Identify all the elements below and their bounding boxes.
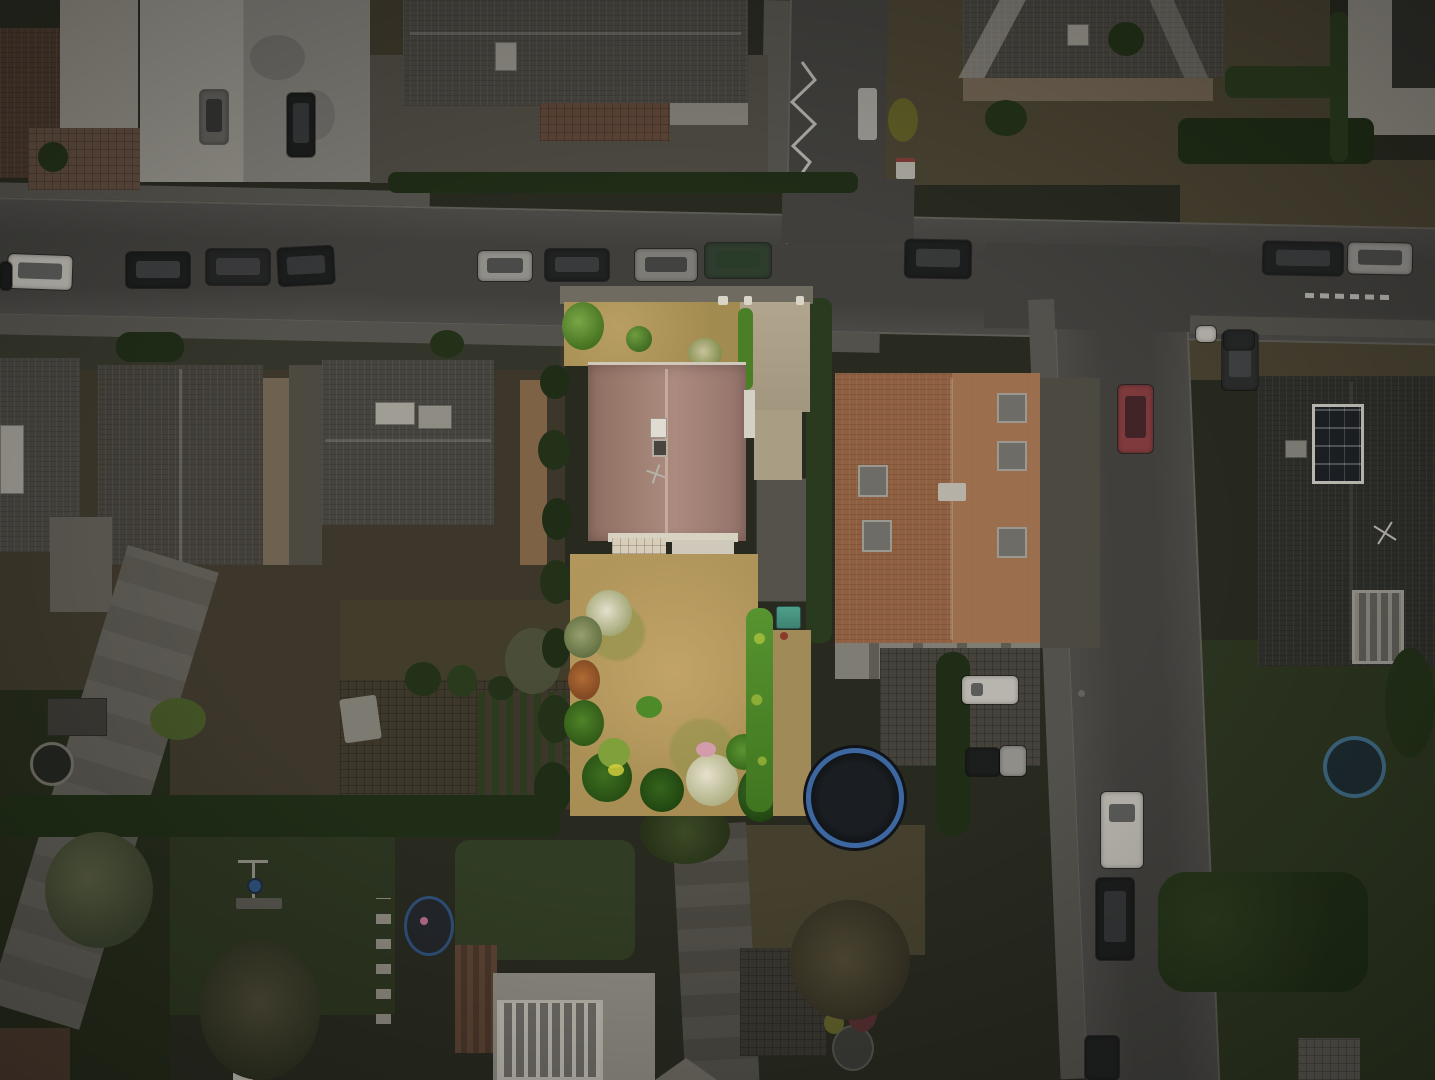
flat-roof-wing-upper (50, 517, 112, 612)
parked-car-silver (478, 251, 532, 281)
hedge-right-garden-row (1158, 872, 1368, 992)
brick-terrace (540, 103, 670, 141)
white-trailer (858, 88, 877, 140)
round-bush-front (626, 326, 652, 352)
teal-storage-boxes (776, 606, 801, 629)
skylight (418, 405, 452, 429)
hedge-topright-garden (1225, 66, 1345, 98)
aerial-neighborhood-photo (0, 0, 1435, 1080)
flower-pink (696, 742, 716, 757)
white-patio-strip (670, 103, 748, 125)
house-roof-mid-left-b (322, 360, 494, 525)
parked-car-black (0, 262, 12, 290)
parked-car-black (126, 252, 190, 288)
car-glass (136, 261, 180, 278)
car-glass (915, 249, 960, 268)
car-glass (18, 262, 62, 280)
parked-car-black (1096, 878, 1134, 960)
gravel-drive-orange-house (1040, 378, 1100, 648)
skylight (1285, 440, 1307, 458)
gate-post (744, 296, 752, 305)
parcel-driveway-lower (754, 410, 802, 480)
paving-bottom-right (1298, 1038, 1360, 1080)
gravel-path-between-houses (289, 365, 322, 565)
car-glass (216, 258, 260, 275)
flat-roof-white-building (140, 0, 370, 182)
bottom-middle-lawn (455, 840, 635, 960)
tree (405, 662, 441, 696)
skylight (1067, 24, 1089, 46)
hot-tub (404, 896, 454, 956)
bush-dark-round (640, 768, 684, 812)
parked-car-black (1263, 241, 1344, 275)
bush-dark-left (564, 700, 604, 746)
bush-row-left-sidewalk (116, 332, 184, 362)
roof-window (862, 520, 892, 552)
parcel-right-hedge (746, 608, 773, 812)
house-roof-corner-bottomleft (0, 1028, 70, 1080)
car-glass (487, 258, 524, 272)
roof-ridge (410, 32, 741, 35)
parked-car-darkgreen (705, 243, 771, 278)
bush (1108, 22, 1144, 56)
parked-car-silver-court (1000, 746, 1026, 776)
car-glass (555, 257, 599, 272)
roof-hatch-white (938, 483, 966, 501)
bush (430, 330, 464, 358)
red-garden-item (780, 632, 788, 640)
tree-right-garden (1385, 648, 1435, 758)
car-glass (1104, 891, 1127, 942)
pergola-brown (455, 945, 497, 1053)
roof-stain (250, 35, 305, 80)
gable-band (958, 0, 1026, 78)
roof-window (997, 393, 1027, 423)
parked-car-black (1085, 1036, 1119, 1080)
parked-car-white (7, 254, 72, 290)
roof-ridge (325, 439, 490, 442)
bush-yellow-accent (608, 764, 624, 776)
roof-skylight-dark (652, 439, 668, 457)
car-glass (645, 257, 687, 272)
parked-car-gray (635, 249, 697, 281)
stepping-stones (376, 898, 391, 1024)
gable-band (1150, 0, 1208, 78)
roof-window (858, 465, 888, 497)
car-glass (293, 103, 310, 143)
car-glass (286, 255, 325, 275)
house-wall-beige (963, 78, 1213, 101)
car-glass (206, 99, 223, 133)
greenhouse-tarp (339, 695, 382, 744)
parked-car-black (277, 246, 335, 287)
hot-tub-item-pink (420, 917, 428, 925)
intersection-patch-east (984, 243, 1211, 333)
car-glass (1276, 249, 1331, 266)
house-roof-top-middle (403, 0, 748, 106)
trampoline (806, 748, 904, 848)
parked-car-black (905, 239, 972, 278)
parcel-right-dry-strip (773, 630, 811, 816)
hedge-bottom-left-long (0, 795, 560, 837)
conservatory-roof-bottom (497, 1000, 603, 1080)
car-glass (1358, 250, 1402, 266)
parked-car-black-forecourt (287, 93, 315, 157)
roof-ridge (950, 378, 953, 639)
garage-white-strip (744, 390, 755, 438)
tree-pale-blossom (45, 832, 153, 948)
hedge-front-top-middle (388, 172, 858, 193)
parked-car-dark-small (1224, 330, 1254, 350)
bush (38, 142, 68, 172)
house-roof-top-right (963, 0, 1225, 78)
parked-car-white-small (1196, 326, 1216, 342)
conservatory-glass-right (1352, 590, 1404, 664)
skylight (495, 42, 517, 71)
highlighted-parcel (560, 286, 813, 838)
hedge-vertical-topright (1330, 12, 1348, 162)
big-bush-front-left (562, 302, 604, 350)
car-glass (971, 683, 983, 696)
parked-car-red (1118, 385, 1153, 453)
bush-yellow (888, 98, 918, 142)
bush-bright-topveg (150, 698, 206, 740)
small-roadside-box (896, 158, 915, 179)
zigzag-road-marking (780, 60, 826, 178)
parked-car-gray-forecourt (200, 90, 228, 144)
bush-small-center (636, 696, 662, 718)
house-wall-beige-a (263, 378, 289, 565)
parked-van-white (1101, 792, 1143, 868)
tree-bottom (200, 940, 320, 1080)
manhole (1078, 690, 1085, 697)
stepping-stones (348, 1030, 362, 1080)
bush (985, 100, 1027, 136)
house-wall-tan (520, 380, 547, 565)
house-wall-white-topleft (60, 0, 138, 128)
roof-ridge (179, 369, 182, 561)
rooftop-ac-unit (375, 402, 415, 425)
gate-post (796, 296, 804, 305)
swing-seat-blue (247, 878, 263, 894)
gate-post (718, 296, 728, 305)
fire-pit-ring (30, 742, 74, 786)
chimney-white (650, 418, 667, 438)
car-glass (1125, 396, 1146, 438)
solar-panel-array (1312, 404, 1364, 484)
parked-car-silver (1348, 242, 1413, 274)
parked-car-black (545, 249, 609, 281)
parked-car-black-court (966, 748, 1000, 776)
bush-gray-green (564, 616, 602, 658)
roof-window (997, 527, 1027, 558)
car-glass (1109, 804, 1134, 822)
garden-bench (236, 898, 282, 909)
tree-dry-bottom-right (790, 900, 910, 1020)
house-roof-mid-left-a (98, 365, 263, 565)
garden-shed-roof (47, 698, 107, 736)
dark-roof-far-topright (1392, 0, 1435, 88)
round-pool (1323, 736, 1386, 798)
bush-orange (568, 660, 600, 700)
solar-panel-white (0, 425, 24, 494)
roof-window (997, 441, 1027, 471)
parked-van-white-court (962, 676, 1018, 704)
tree (447, 665, 477, 697)
parked-car-black (206, 249, 270, 285)
car-glass (716, 251, 761, 268)
